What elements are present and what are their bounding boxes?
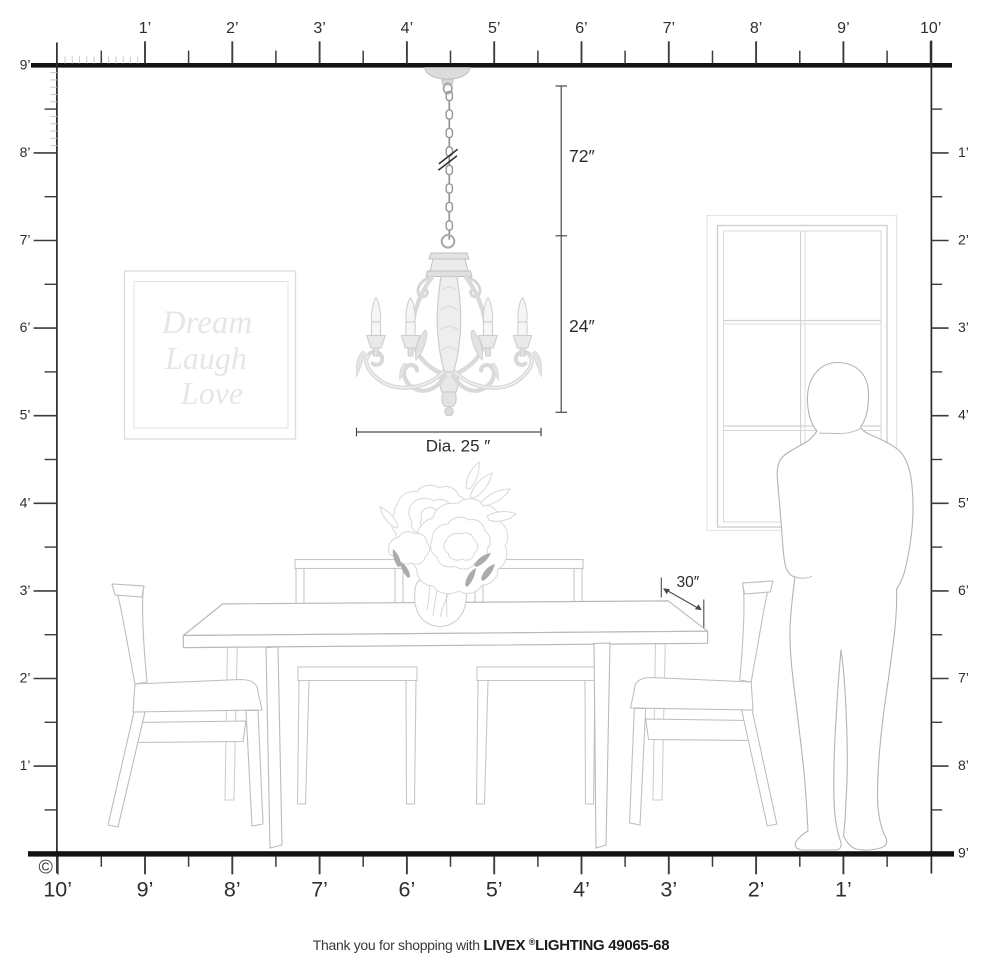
svg-text:Dia. 25 ″: Dia. 25 ″ xyxy=(426,437,491,456)
svg-text:7’: 7’ xyxy=(20,232,31,248)
svg-text:7’: 7’ xyxy=(958,670,969,686)
svg-text:1’: 1’ xyxy=(20,757,31,773)
svg-text:10’: 10’ xyxy=(43,878,72,902)
svg-text:1’: 1’ xyxy=(139,20,151,37)
svg-text:30″: 30″ xyxy=(677,574,700,591)
svg-text:5’: 5’ xyxy=(20,407,31,423)
svg-text:7’: 7’ xyxy=(311,878,328,902)
svg-text:6’: 6’ xyxy=(958,582,969,598)
svg-text:4’: 4’ xyxy=(401,20,413,37)
svg-text:5’: 5’ xyxy=(488,20,500,37)
svg-text:72″: 72″ xyxy=(569,146,595,166)
svg-text:©: © xyxy=(39,857,54,879)
svg-text:6’: 6’ xyxy=(20,319,31,335)
svg-text:24″: 24″ xyxy=(569,316,595,336)
svg-text:Laugh: Laugh xyxy=(164,340,247,376)
svg-text:3’: 3’ xyxy=(660,878,677,902)
svg-text:5’: 5’ xyxy=(958,494,969,510)
svg-text:1’: 1’ xyxy=(958,144,969,160)
svg-text:9’: 9’ xyxy=(20,56,31,72)
svg-text:6’: 6’ xyxy=(575,20,587,37)
svg-text:8’: 8’ xyxy=(958,757,969,773)
svg-text:10’: 10’ xyxy=(920,20,941,37)
svg-text:Dream: Dream xyxy=(161,305,252,341)
svg-text:2’: 2’ xyxy=(958,232,969,248)
svg-text:4’: 4’ xyxy=(20,494,31,510)
svg-text:Love: Love xyxy=(180,375,243,411)
svg-text:5’: 5’ xyxy=(486,878,503,902)
svg-text:9’: 9’ xyxy=(837,20,849,37)
svg-text:8’: 8’ xyxy=(20,144,31,160)
svg-text:8’: 8’ xyxy=(224,878,241,902)
svg-text:9’: 9’ xyxy=(958,845,969,861)
svg-text:2’: 2’ xyxy=(748,878,765,902)
svg-text:7’: 7’ xyxy=(663,20,675,37)
svg-text:2’: 2’ xyxy=(226,20,238,37)
svg-text:3’: 3’ xyxy=(20,582,31,598)
svg-text:3’: 3’ xyxy=(313,20,325,37)
svg-text:1’: 1’ xyxy=(835,878,852,902)
svg-text:4’: 4’ xyxy=(958,407,969,423)
svg-text:4’: 4’ xyxy=(573,878,590,902)
svg-text:2’: 2’ xyxy=(20,670,31,686)
svg-text:9’: 9’ xyxy=(137,878,154,902)
svg-text:6’: 6’ xyxy=(399,878,416,902)
svg-text:3’: 3’ xyxy=(958,319,969,335)
svg-text:8’: 8’ xyxy=(750,20,762,37)
